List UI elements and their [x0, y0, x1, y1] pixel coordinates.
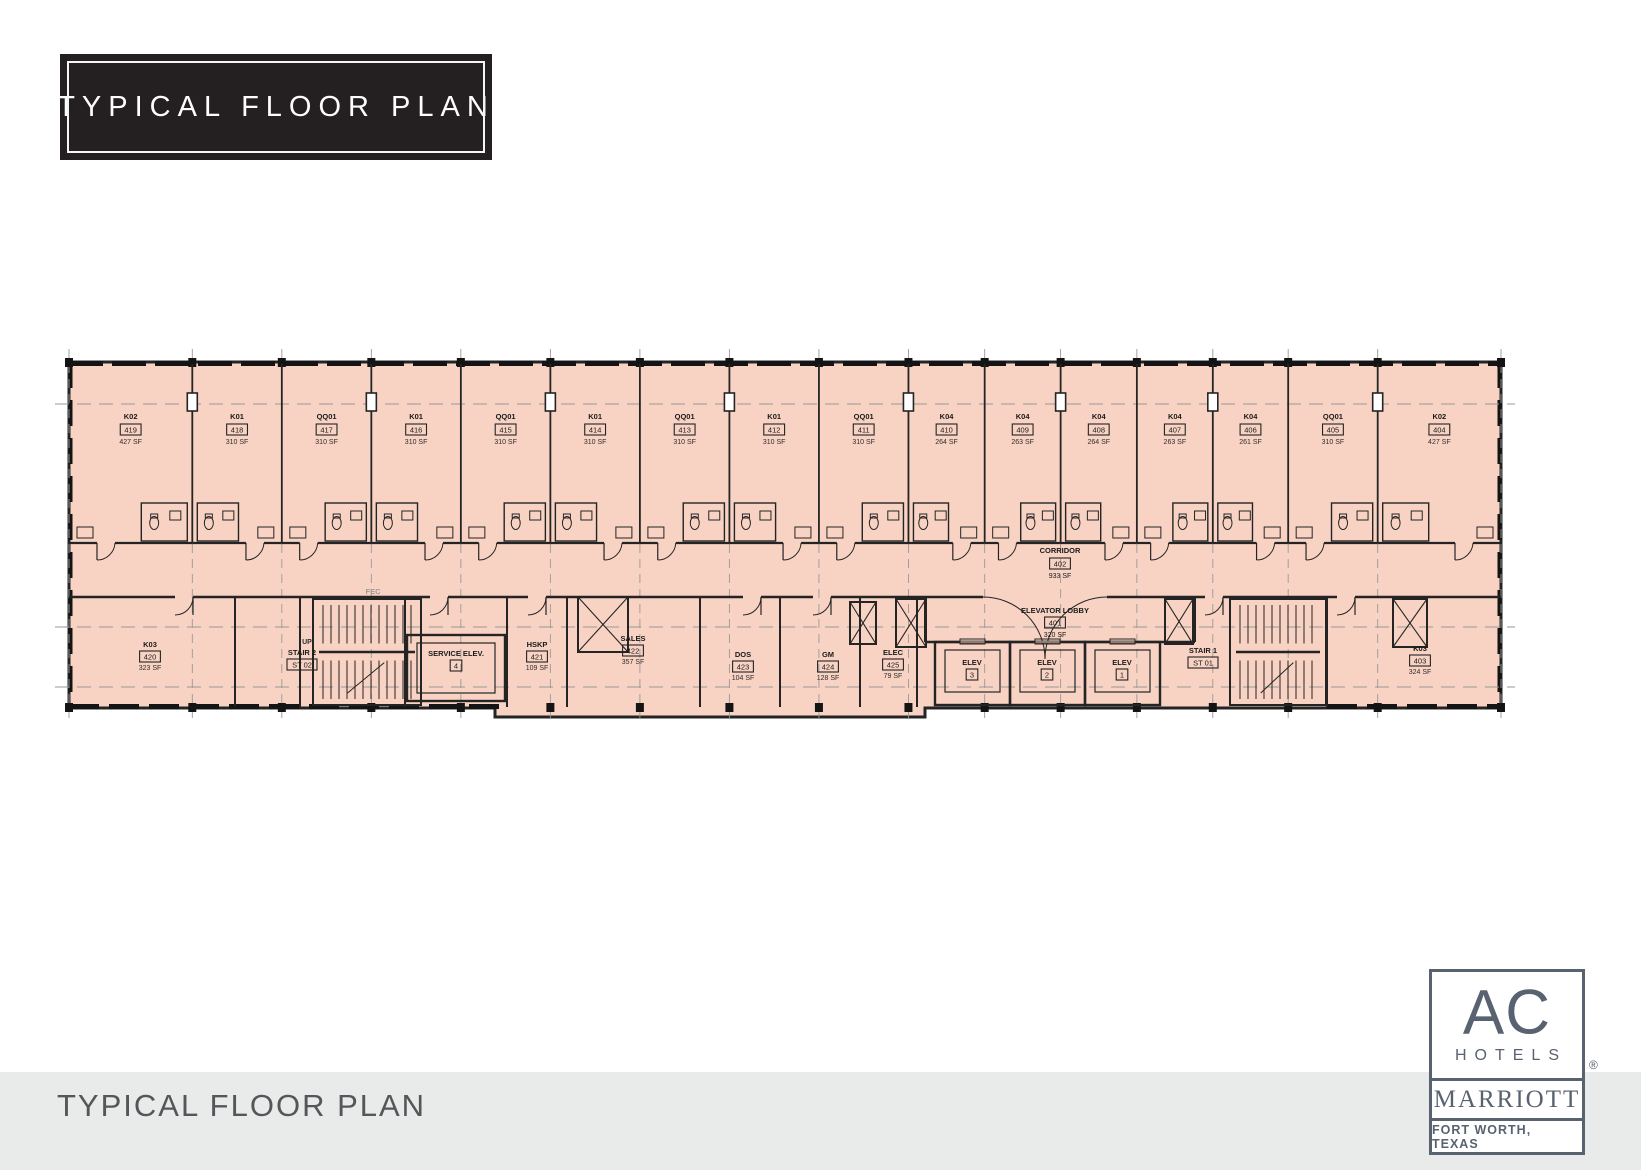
plan-text: 310 SF: [673, 439, 696, 446]
plan-text: 310 SF: [405, 439, 428, 446]
plan-text: 412: [768, 426, 781, 435]
plan-text: STAIR 1: [1189, 646, 1217, 655]
plan-text: 416: [410, 426, 423, 435]
slide-canvas: TYPICAL FLOOR PLAN K02419427 SFK01418310…: [0, 0, 1641, 1170]
registered-mark: ®: [1589, 1058, 1598, 1072]
plan-text: 424: [822, 663, 835, 672]
plan-text: 264 SF: [1087, 439, 1110, 446]
plan-text: 320 SF: [1044, 632, 1067, 639]
plan-text: K04: [1168, 412, 1183, 421]
plan-text: 310 SF: [494, 439, 517, 446]
plan-text: ELEV: [1037, 658, 1057, 667]
plan-text: 402: [1054, 560, 1067, 569]
plan-text: 423: [737, 663, 750, 672]
plan-text: 415: [499, 426, 512, 435]
plan-text: 1: [1120, 671, 1124, 680]
plan-text: ELEV: [962, 658, 982, 667]
logo-sub-brand: HOTELS: [1455, 1047, 1567, 1065]
plan-text: 310 SF: [1322, 439, 1345, 446]
plan-text: DOS: [735, 650, 751, 659]
floor-plan: K02419427 SFK01418310 SFQQ01417310 SFK01…: [55, 347, 1515, 725]
plan-text: 422: [627, 647, 640, 656]
plan-text: K02: [1432, 412, 1446, 421]
plan-text: 933 SF: [1049, 573, 1072, 580]
logo-main-section: AC HOTELS: [1432, 972, 1582, 1078]
plan-text: 310 SF: [315, 439, 338, 446]
plan-text: 427 SF: [1428, 439, 1451, 446]
plan-text: ELEVATOR LOBBY: [1021, 606, 1089, 615]
plan-text: 310 SF: [763, 439, 786, 446]
plan-text: 263 SF: [1011, 439, 1034, 446]
plan-text: UP: [302, 639, 312, 646]
plan-text: 357 SF: [622, 659, 645, 666]
plan-text: ST 01: [1193, 659, 1213, 668]
plan-text: K04: [940, 412, 955, 421]
plan-text: SALES: [620, 634, 645, 643]
plan-text: STAIR 2: [288, 648, 316, 657]
plan-text: 263 SF: [1164, 439, 1187, 446]
plan-text: CORRIDOR: [1040, 546, 1081, 555]
plan-text: 420: [144, 653, 157, 662]
plan-text: 310 SF: [584, 439, 607, 446]
plan-text: 427 SF: [119, 439, 142, 446]
plan-text: 421: [531, 653, 544, 662]
plan-text: 109 SF: [526, 665, 549, 672]
plan-text: ELEC: [883, 648, 904, 657]
plan-text: 413: [678, 426, 691, 435]
plan-text: 2: [1045, 671, 1049, 680]
plan-text: 403: [1414, 657, 1427, 666]
plan-text: QQ01: [854, 412, 874, 421]
plan-text: 410: [940, 426, 953, 435]
plan-text: 401: [1049, 619, 1062, 628]
plan-text: SERVICE ELEV.: [428, 649, 484, 658]
plan-text: ELEV: [1112, 658, 1132, 667]
plan-text: K04: [1092, 412, 1107, 421]
plan-text: 264 SF: [935, 439, 958, 446]
plan-text: GM: [822, 650, 834, 659]
plan-text: 404: [1433, 426, 1446, 435]
plan-text: 104 SF: [732, 675, 755, 682]
logo-location: FORT WORTH, TEXAS: [1432, 1118, 1582, 1152]
plan-text: ST 02: [292, 661, 312, 670]
plan-text: 310 SF: [226, 439, 249, 446]
ac-hotels-logo: AC HOTELS MARRIOTT FORT WORTH, TEXAS: [1429, 969, 1585, 1155]
plan-text: K01: [588, 412, 602, 421]
plan-text: 411: [858, 426, 870, 435]
plan-text: 414: [589, 426, 602, 435]
plan-text: 310 SF: [852, 439, 875, 446]
title-block: TYPICAL FLOOR PLAN: [60, 54, 492, 160]
plan-text: K03: [143, 640, 157, 649]
plan-text: 406: [1244, 426, 1257, 435]
plan-text: 409: [1016, 426, 1029, 435]
plan-text: QQ01: [496, 412, 516, 421]
page-title: TYPICAL FLOOR PLAN: [57, 91, 495, 124]
plan-text: 407: [1169, 426, 1182, 435]
plan-text: QQ01: [675, 412, 695, 421]
plan-text: K04: [1244, 412, 1259, 421]
plan-text: QQ01: [1323, 412, 1343, 421]
plan-text: 128 SF: [817, 675, 840, 682]
plan-text: 425: [887, 661, 900, 670]
plan-text: HSKP: [527, 640, 548, 649]
plan-text: QQ01: [317, 412, 337, 421]
plan-text: K01: [409, 412, 423, 421]
logo-parent-brand: MARRIOTT: [1432, 1078, 1582, 1118]
plan-text: 418: [231, 426, 244, 435]
plan-text: K01: [230, 412, 244, 421]
plan-text: 417: [320, 426, 333, 435]
plan-text: 408: [1092, 426, 1105, 435]
plan-text: 323 SF: [139, 665, 162, 672]
plan-text: 405: [1327, 426, 1340, 435]
plan-text: FEC: [366, 587, 382, 596]
logo-brand: AC: [1463, 985, 1551, 1042]
plan-text: K01: [767, 412, 781, 421]
footer-title: TYPICAL FLOOR PLAN: [57, 1088, 426, 1124]
plan-text: K02: [124, 412, 138, 421]
floor-plan-drawing: K02419427 SFK01418310 SFQQ01417310 SFK01…: [55, 347, 1515, 725]
plan-text: 4: [454, 662, 458, 671]
plan-text: 3: [970, 671, 974, 680]
plan-text: 324 SF: [1409, 669, 1432, 676]
plan-text: K03: [1413, 644, 1427, 653]
plan-text: 419: [124, 426, 137, 435]
plan-text: K04: [1016, 412, 1031, 421]
plan-text: 79 SF: [884, 673, 903, 680]
plan-text: 261 SF: [1239, 439, 1262, 446]
